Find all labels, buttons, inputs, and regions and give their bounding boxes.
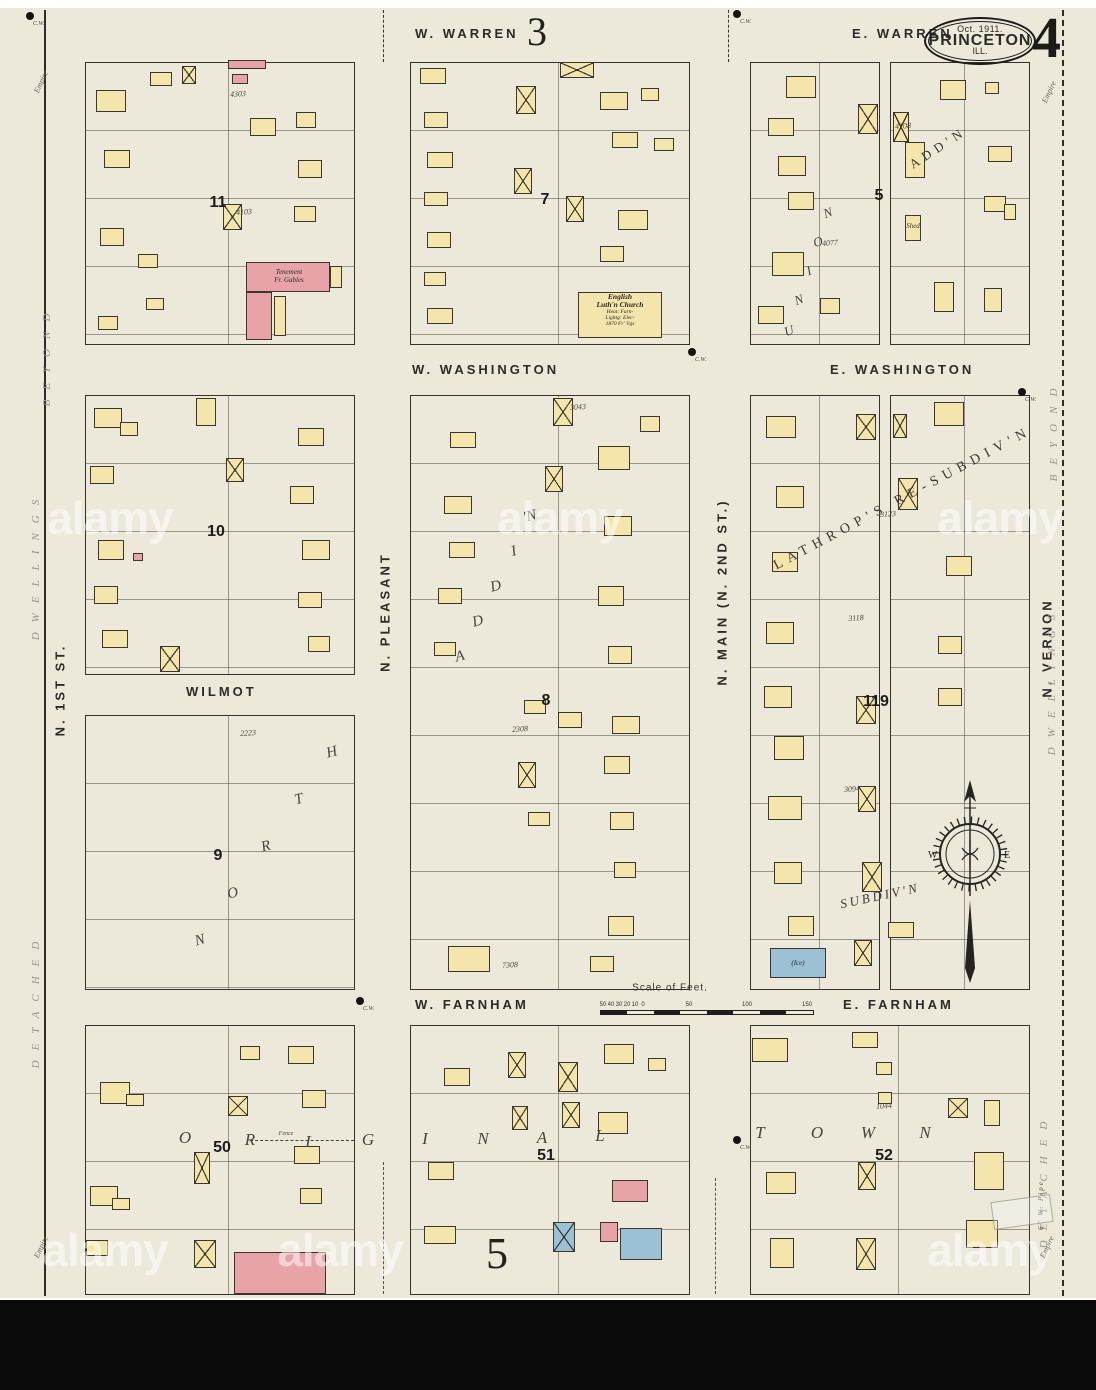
building <box>94 586 118 604</box>
building <box>608 916 634 936</box>
block-number: 119 <box>863 693 889 711</box>
cistern-label: C.W. <box>740 1145 751 1151</box>
building <box>100 228 124 246</box>
building <box>226 458 244 482</box>
building <box>450 432 476 448</box>
street-label-e-washington: E. WASHINGTON <box>830 362 974 377</box>
adjacent-sheet-ref-top: 3 <box>527 8 547 55</box>
scale-title: Scale of Feet. <box>632 983 708 994</box>
building <box>126 1094 144 1106</box>
margin-label-beyond: BEYOND <box>1048 379 1060 482</box>
map-annotations-layer: 1175108911950515243034103410840773043312… <box>0 0 1096 1390</box>
building <box>856 414 876 440</box>
block-number: 9 <box>214 847 223 865</box>
building <box>302 540 330 560</box>
cistern-dot <box>1018 388 1026 396</box>
scale-tick: 40 <box>608 1002 615 1008</box>
building <box>427 308 453 324</box>
building <box>590 956 614 972</box>
lot-number: 4103 <box>236 207 253 217</box>
cistern-label: C.W. <box>33 21 44 27</box>
street-label-n-pleasant: N. PLEASANT <box>378 552 393 672</box>
lot-number: 3043 <box>570 402 587 412</box>
alamy-watermark: alamy <box>937 491 1062 545</box>
building <box>974 1152 1004 1190</box>
title-state: ILL. <box>926 47 1034 55</box>
building <box>428 1162 454 1180</box>
building <box>600 92 628 110</box>
building <box>768 118 794 136</box>
fence-line <box>250 1140 354 1141</box>
building <box>598 586 624 606</box>
scale-tick: 30 <box>616 1002 623 1008</box>
subdivision-letter: U <box>782 322 796 340</box>
subdivision-letter: G <box>362 1130 374 1150</box>
subdivision-letter: N <box>792 291 806 309</box>
title-city: PRINCETON <box>926 34 1034 47</box>
building <box>553 1222 575 1252</box>
title-date: Oct. 1911. <box>926 24 1034 34</box>
building <box>516 86 536 114</box>
building <box>852 1032 878 1048</box>
building <box>194 1240 216 1268</box>
subdivision-letter: I <box>422 1129 428 1149</box>
building <box>988 146 1012 162</box>
subdivision-letter: T <box>293 791 305 810</box>
subdivision-letter: O <box>179 1128 191 1148</box>
alamy-watermark: alamy <box>497 491 622 545</box>
building <box>138 254 158 268</box>
building <box>648 1058 666 1071</box>
building <box>888 922 914 938</box>
building <box>774 736 804 760</box>
ice-house-building: (Ice) <box>770 948 826 978</box>
building <box>566 196 584 222</box>
building <box>290 486 314 504</box>
building <box>424 112 448 128</box>
building <box>444 496 472 514</box>
building <box>788 916 814 936</box>
building <box>620 1228 662 1260</box>
building <box>424 1226 456 1244</box>
subdivision-letter: N <box>821 204 835 222</box>
building <box>545 466 563 492</box>
ice-label: (Ice) <box>791 959 804 967</box>
subdivision-letter: T <box>755 1123 764 1143</box>
building <box>600 246 624 262</box>
title-oval: Oct. 1911. PRINCETON ILL. <box>924 17 1036 65</box>
building <box>528 812 550 826</box>
subdivision-letter: O <box>811 233 825 251</box>
building <box>560 62 594 78</box>
subdivision-letter: D <box>489 577 504 596</box>
alamy-watermark: alamy <box>927 1223 1052 1277</box>
building <box>766 1172 796 1194</box>
building <box>948 1098 968 1118</box>
block-number: 8 <box>542 692 551 710</box>
building <box>766 622 794 644</box>
subdivision-letter: N <box>919 1123 930 1143</box>
building <box>938 688 962 706</box>
block-number: 50 <box>213 1139 231 1157</box>
building <box>618 210 648 230</box>
scale-tick: 0 <box>641 1002 644 1008</box>
cistern-label: C.W. <box>1025 397 1036 403</box>
subdivision-letter: W <box>861 1123 875 1143</box>
subdivision-letter: L <box>595 1126 604 1146</box>
building <box>770 1238 794 1268</box>
margin-label-detached: DETACHED <box>30 932 42 1069</box>
building <box>614 862 636 878</box>
south-spear <box>965 900 975 983</box>
building <box>558 712 582 728</box>
subdivision-letter: A <box>453 648 466 667</box>
subdivision-letter: I <box>305 1132 311 1152</box>
building <box>96 90 126 112</box>
cistern-dot <box>733 10 741 18</box>
building <box>778 156 806 176</box>
building <box>604 756 630 774</box>
building <box>768 796 802 820</box>
alamy-watermark: alamy <box>42 1223 167 1277</box>
scale-tick: 50 <box>600 1002 607 1008</box>
building <box>940 80 966 100</box>
building <box>764 686 792 708</box>
building <box>98 316 118 330</box>
block-number: 10 <box>207 523 225 541</box>
building <box>288 1046 314 1064</box>
lot-number: 4303 <box>230 89 247 99</box>
building <box>604 1044 634 1064</box>
cistern-dot <box>733 1136 741 1144</box>
subdivision-letter: O <box>226 884 241 903</box>
building <box>654 138 674 151</box>
scale-tick: 10 <box>632 1002 639 1008</box>
building <box>240 1046 260 1060</box>
building <box>146 298 164 310</box>
scale-tick: 100 <box>742 1002 752 1008</box>
street-label-w-warren: W. WARREN <box>415 26 519 41</box>
block-number: 51 <box>537 1147 555 1165</box>
building <box>508 1052 526 1078</box>
cistern-dot <box>688 348 696 356</box>
building <box>641 88 659 101</box>
building <box>296 112 316 128</box>
subdivision-letter: H <box>325 743 340 762</box>
building <box>150 72 172 86</box>
building <box>298 428 324 446</box>
lot-number: 3118 <box>848 613 864 623</box>
margin-label-dwellings: DWELLINGS <box>1046 605 1058 756</box>
building <box>160 646 180 672</box>
street-label-n-main: N. MAIN (N. 2ND ST.) <box>715 498 730 685</box>
building <box>558 1062 578 1092</box>
building <box>424 272 446 286</box>
building <box>858 1162 876 1190</box>
building <box>610 812 634 830</box>
lot-number: 2223 <box>240 728 257 738</box>
tenement-label: Tenement Fr. Gables <box>252 268 326 284</box>
building <box>90 466 114 484</box>
building <box>228 1096 248 1116</box>
subdivision-letter: I <box>804 263 814 280</box>
building <box>308 636 330 652</box>
building <box>448 946 490 972</box>
lot-number: 1044 <box>876 1101 893 1111</box>
building <box>858 786 876 812</box>
fence-label: Fence <box>279 1131 294 1137</box>
building <box>984 288 1002 312</box>
subdivision-letter: D <box>471 612 486 631</box>
cistern-dot <box>356 997 364 1005</box>
scale-tick: 50 <box>686 1002 693 1008</box>
building <box>444 1068 470 1086</box>
scale-bar <box>600 1010 814 1015</box>
building <box>774 862 802 884</box>
cistern-dot <box>26 12 34 20</box>
building <box>94 408 122 428</box>
street-label-n-1st: N. 1ST ST. <box>53 644 68 737</box>
block-number: 5 <box>875 187 884 205</box>
building <box>232 74 248 84</box>
building <box>302 1090 326 1108</box>
adjacent-sheet-ref-bottom: 5 <box>486 1228 508 1279</box>
alamy-watermark: alamy <box>47 491 172 545</box>
building <box>938 636 962 654</box>
building <box>946 556 972 576</box>
building <box>427 232 451 248</box>
compass-east: E <box>1004 850 1010 861</box>
building <box>786 76 816 98</box>
building <box>298 160 322 178</box>
building <box>788 192 814 210</box>
building <box>608 646 632 664</box>
compass-rose: W E <box>915 778 1025 993</box>
building <box>182 66 196 84</box>
building <box>612 132 638 148</box>
building <box>102 630 128 648</box>
building <box>856 1238 876 1270</box>
margin-label-beyond: BEYOND <box>41 304 53 407</box>
block-number: 7 <box>541 191 550 209</box>
building <box>228 60 266 69</box>
building <box>858 104 878 134</box>
building <box>752 1038 788 1062</box>
subdivision-letter: I <box>509 543 518 561</box>
building <box>133 553 143 561</box>
building <box>104 150 130 168</box>
building <box>250 118 276 136</box>
cistern-label: C.W. <box>363 1006 374 1012</box>
building <box>449 542 475 558</box>
lot-number: 3094 <box>844 784 861 794</box>
building <box>194 1152 210 1184</box>
sheet-number: 4 <box>1032 4 1061 71</box>
building <box>766 416 796 438</box>
watermark-footer-bar: Image ID: 2HEHFDX www.alamy.com <box>0 1300 1096 1390</box>
cistern-label: C.W. <box>695 357 706 363</box>
building <box>612 716 640 734</box>
building <box>112 1198 130 1210</box>
building <box>427 152 453 168</box>
building <box>518 762 536 788</box>
building <box>274 296 286 336</box>
building <box>893 414 907 438</box>
building <box>300 1188 322 1204</box>
building <box>985 82 999 94</box>
building <box>876 1062 892 1075</box>
building <box>438 588 462 604</box>
block-number: 11 <box>210 194 227 212</box>
street-label-wilmot: WILMOT <box>186 684 257 699</box>
building <box>984 1100 1000 1126</box>
compass-west: W <box>928 850 938 861</box>
building <box>600 1222 618 1242</box>
building <box>984 196 1006 212</box>
church-detail: 1870 Fr' Vgs <box>579 321 661 327</box>
block-number: 52 <box>875 1147 893 1165</box>
lot-number: 2308 <box>512 724 529 734</box>
building <box>820 298 840 314</box>
church-label: Luth'n Church <box>579 301 661 309</box>
lot-number: 7308 <box>502 960 519 970</box>
building <box>294 206 316 222</box>
sanborn-map-sheet: 1175108911950515243034103410840773043312… <box>0 0 1096 1390</box>
building <box>298 592 322 608</box>
building <box>934 402 964 426</box>
building <box>246 292 272 340</box>
building <box>120 422 138 436</box>
building <box>330 266 342 288</box>
building <box>420 68 446 84</box>
building <box>776 486 804 508</box>
subdivision-letter: N <box>193 931 207 950</box>
street-label-w-washington: W. WASHINGTON <box>412 362 559 377</box>
building <box>512 1106 528 1130</box>
subdivision-letter: O <box>811 1123 823 1143</box>
building <box>562 1102 580 1128</box>
scale-tick: 150 <box>802 1002 812 1008</box>
subdivision-letter: N <box>477 1129 488 1149</box>
tenement-label-line: Tenement <box>252 268 326 276</box>
scale-tick: 20 <box>624 1002 631 1008</box>
building <box>1004 204 1016 220</box>
shed-label: Shed <box>906 222 920 230</box>
alamy-watermark: alamy <box>277 1223 402 1277</box>
street-label-w-farnham: W. FARNHAM <box>415 997 529 1012</box>
building <box>854 940 872 966</box>
building <box>598 446 630 470</box>
building <box>196 398 216 426</box>
building <box>934 282 954 312</box>
street-label-e-farnham: E. FARNHAM <box>843 997 954 1012</box>
building <box>612 1180 648 1202</box>
margin-label-dwellings: DWELLINGS <box>30 490 42 641</box>
building <box>640 416 660 432</box>
building <box>424 192 448 206</box>
subdivision-letter: R <box>259 838 272 857</box>
building <box>758 306 784 324</box>
lot-number: 4108 <box>895 121 912 131</box>
subdivision-letter: A <box>537 1128 547 1148</box>
building <box>514 168 532 194</box>
church-building: English Luth'n Church Heat: Furn- Lightg… <box>578 292 662 338</box>
cistern-label: C.W. <box>740 19 751 25</box>
building <box>772 252 804 276</box>
tenement-label-line: Fr. Gables <box>252 276 326 284</box>
